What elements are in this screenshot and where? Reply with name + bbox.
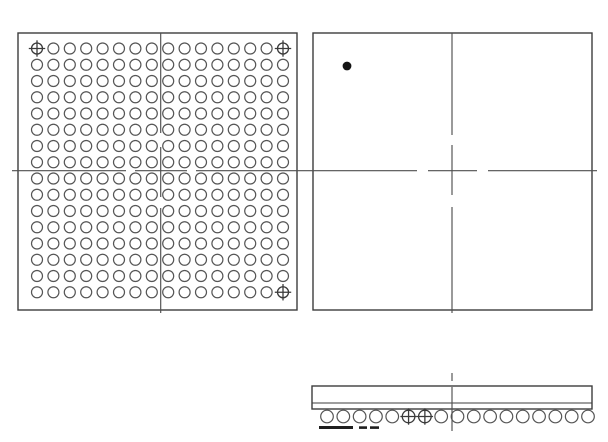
solder-ball — [81, 206, 92, 217]
solder-ball — [278, 173, 289, 184]
solder-ball — [228, 189, 239, 200]
solder-ball — [48, 76, 59, 87]
solder-ball-side — [468, 410, 481, 423]
solder-ball — [97, 254, 108, 265]
solder-ball — [196, 254, 207, 265]
solder-ball — [64, 254, 75, 265]
solder-ball — [228, 124, 239, 135]
solder-ball — [97, 76, 108, 87]
solder-ball — [130, 92, 141, 103]
solder-ball — [97, 173, 108, 184]
solder-ball — [163, 173, 174, 184]
solder-ball — [48, 189, 59, 200]
solder-ball — [228, 92, 239, 103]
solder-ball-side — [484, 410, 497, 423]
solder-ball — [114, 124, 125, 135]
solder-ball — [179, 157, 190, 168]
solder-ball — [81, 59, 92, 70]
solder-ball — [196, 206, 207, 217]
solder-ball — [179, 108, 190, 119]
solder-ball — [130, 238, 141, 249]
solder-ball — [130, 76, 141, 87]
solder-ball — [245, 141, 256, 152]
solder-ball — [114, 206, 125, 217]
solder-ball — [261, 124, 272, 135]
solder-ball — [130, 222, 141, 233]
solder-ball — [146, 206, 157, 217]
solder-ball — [179, 173, 190, 184]
solder-ball — [32, 222, 43, 233]
solder-ball — [163, 141, 174, 152]
solder-ball — [212, 206, 223, 217]
solder-ball — [261, 157, 272, 168]
solder-ball — [245, 43, 256, 54]
solder-ball — [81, 108, 92, 119]
solder-ball-side — [516, 410, 529, 423]
solder-ball — [81, 76, 92, 87]
solder-ball — [245, 76, 256, 87]
solder-ball — [261, 141, 272, 152]
solder-ball — [163, 92, 174, 103]
solder-ball — [212, 189, 223, 200]
solder-ball — [32, 254, 43, 265]
solder-ball — [212, 59, 223, 70]
solder-ball — [228, 287, 239, 298]
solder-ball — [97, 189, 108, 200]
solder-ball — [146, 189, 157, 200]
solder-ball — [245, 173, 256, 184]
solder-ball — [146, 76, 157, 87]
solder-ball — [97, 141, 108, 152]
solder-ball — [130, 206, 141, 217]
solder-ball — [97, 157, 108, 168]
solder-ball-side — [582, 410, 595, 423]
solder-ball — [64, 92, 75, 103]
solder-ball — [179, 271, 190, 282]
solder-ball — [146, 271, 157, 282]
solder-ball — [130, 108, 141, 119]
solder-ball — [212, 222, 223, 233]
solder-ball — [130, 271, 141, 282]
solder-ball — [278, 189, 289, 200]
solder-ball — [64, 173, 75, 184]
solder-ball — [228, 173, 239, 184]
solder-ball — [163, 43, 174, 54]
solder-ball — [212, 173, 223, 184]
solder-ball — [228, 157, 239, 168]
bga-top-view — [306, 33, 597, 313]
solder-ball — [97, 222, 108, 233]
solder-ball — [212, 271, 223, 282]
solder-ball — [245, 238, 256, 249]
solder-ball — [48, 287, 59, 298]
solder-ball — [179, 254, 190, 265]
solder-ball — [278, 141, 289, 152]
solder-ball — [163, 222, 174, 233]
solder-ball — [179, 92, 190, 103]
solder-ball — [64, 59, 75, 70]
bga-package-drawing — [0, 0, 608, 442]
solder-ball — [196, 238, 207, 249]
solder-ball — [32, 206, 43, 217]
solder-ball — [245, 271, 256, 282]
solder-ball — [228, 59, 239, 70]
seating-plane-datum-mark — [370, 426, 379, 429]
solder-ball — [114, 59, 125, 70]
solder-ball-side — [321, 410, 334, 423]
solder-ball — [114, 173, 125, 184]
solder-ball — [261, 254, 272, 265]
solder-ball — [196, 108, 207, 119]
solder-ball — [146, 92, 157, 103]
solder-ball — [261, 43, 272, 54]
solder-ball — [64, 222, 75, 233]
solder-ball — [163, 206, 174, 217]
solder-ball — [196, 173, 207, 184]
solder-ball — [81, 189, 92, 200]
solder-ball — [245, 124, 256, 135]
solder-ball-side — [337, 410, 350, 423]
solder-ball — [81, 141, 92, 152]
solder-ball-side — [549, 410, 562, 423]
solder-ball — [278, 206, 289, 217]
solder-ball — [179, 189, 190, 200]
solder-ball — [245, 157, 256, 168]
solder-ball — [32, 189, 43, 200]
solder-ball — [196, 43, 207, 54]
solder-ball — [48, 238, 59, 249]
solder-ball — [196, 59, 207, 70]
solder-ball — [163, 271, 174, 282]
solder-ball — [261, 189, 272, 200]
solder-ball — [245, 92, 256, 103]
solder-ball — [212, 287, 223, 298]
solder-ball — [179, 222, 190, 233]
solder-ball — [64, 108, 75, 119]
solder-ball — [212, 157, 223, 168]
solder-ball — [81, 222, 92, 233]
solder-ball — [228, 254, 239, 265]
solder-ball — [163, 76, 174, 87]
solder-ball — [196, 287, 207, 298]
solder-ball-side — [533, 410, 546, 423]
solder-ball — [130, 157, 141, 168]
solder-ball — [97, 108, 108, 119]
solder-ball — [81, 124, 92, 135]
solder-ball — [130, 59, 141, 70]
solder-ball — [81, 92, 92, 103]
solder-ball — [114, 238, 125, 249]
solder-ball — [64, 238, 75, 249]
solder-ball — [97, 238, 108, 249]
solder-ball-side — [451, 410, 464, 423]
solder-ball — [278, 254, 289, 265]
solder-ball — [97, 59, 108, 70]
solder-ball — [32, 141, 43, 152]
solder-ball — [228, 206, 239, 217]
solder-ball — [196, 271, 207, 282]
solder-ball — [32, 76, 43, 87]
solder-ball — [278, 92, 289, 103]
solder-ball — [97, 43, 108, 54]
solder-ball — [163, 108, 174, 119]
solder-ball — [245, 108, 256, 119]
solder-ball — [81, 43, 92, 54]
solder-ball — [212, 108, 223, 119]
solder-ball — [261, 271, 272, 282]
solder-ball — [245, 59, 256, 70]
solder-ball — [179, 76, 190, 87]
solder-ball — [179, 206, 190, 217]
solder-ball — [278, 108, 289, 119]
solder-ball — [130, 124, 141, 135]
solder-ball — [212, 254, 223, 265]
solder-ball — [32, 238, 43, 249]
solder-ball — [146, 43, 157, 54]
solder-ball — [114, 254, 125, 265]
solder-ball — [64, 271, 75, 282]
solder-ball — [261, 76, 272, 87]
solder-ball-side — [500, 410, 513, 423]
solder-ball — [64, 287, 75, 298]
solder-ball — [228, 238, 239, 249]
package-outline-bottom — [18, 33, 297, 310]
solder-ball — [114, 43, 125, 54]
solder-ball — [179, 59, 190, 70]
solder-ball — [97, 287, 108, 298]
solder-ball — [212, 76, 223, 87]
solder-ball — [64, 157, 75, 168]
solder-ball — [228, 76, 239, 87]
solder-ball — [163, 287, 174, 298]
solder-ball — [32, 59, 43, 70]
solder-ball — [146, 222, 157, 233]
solder-ball — [245, 254, 256, 265]
solder-ball — [212, 92, 223, 103]
solder-ball — [146, 254, 157, 265]
solder-ball — [81, 271, 92, 282]
solder-ball — [32, 173, 43, 184]
solder-ball — [179, 287, 190, 298]
solder-ball — [48, 157, 59, 168]
solder-ball — [212, 141, 223, 152]
solder-ball — [64, 141, 75, 152]
solder-ball-side — [353, 410, 366, 423]
solder-ball — [228, 271, 239, 282]
solder-ball — [278, 222, 289, 233]
solder-ball — [278, 124, 289, 135]
solder-ball — [196, 76, 207, 87]
solder-ball — [114, 92, 125, 103]
solder-ball — [278, 238, 289, 249]
solder-ball-side — [435, 410, 448, 423]
solder-ball — [196, 157, 207, 168]
solder-ball — [97, 271, 108, 282]
solder-ball — [64, 124, 75, 135]
solder-ball-side — [565, 410, 578, 423]
solder-ball — [114, 157, 125, 168]
solder-ball — [114, 189, 125, 200]
solder-ball — [81, 157, 92, 168]
solder-ball — [228, 222, 239, 233]
solder-ball — [163, 59, 174, 70]
bga-side-view — [312, 373, 594, 431]
solder-ball — [228, 141, 239, 152]
solder-ball — [146, 157, 157, 168]
solder-ball — [245, 287, 256, 298]
solder-ball — [163, 124, 174, 135]
solder-ball — [48, 92, 59, 103]
solder-ball — [212, 124, 223, 135]
solder-ball — [179, 43, 190, 54]
bga-bottom-view — [12, 33, 306, 313]
solder-ball — [212, 43, 223, 54]
solder-ball — [64, 76, 75, 87]
solder-ball — [261, 59, 272, 70]
a1-ball-indicator-dot — [343, 62, 352, 71]
solder-ball — [48, 173, 59, 184]
solder-ball — [146, 238, 157, 249]
solder-ball — [32, 108, 43, 119]
solder-ball — [196, 124, 207, 135]
solder-ball — [228, 43, 239, 54]
solder-ball — [97, 124, 108, 135]
package-drawing-canvas — [0, 0, 608, 442]
solder-ball — [146, 287, 157, 298]
solder-ball — [81, 254, 92, 265]
solder-ball — [146, 173, 157, 184]
solder-ball — [48, 254, 59, 265]
solder-ball — [114, 222, 125, 233]
solder-ball — [32, 92, 43, 103]
solder-ball — [97, 206, 108, 217]
solder-ball — [163, 157, 174, 168]
solder-ball — [64, 189, 75, 200]
solder-ball — [278, 271, 289, 282]
solder-ball — [278, 157, 289, 168]
solder-ball — [163, 254, 174, 265]
solder-ball — [64, 206, 75, 217]
solder-ball — [228, 108, 239, 119]
solder-ball — [81, 173, 92, 184]
solder-ball — [48, 108, 59, 119]
solder-ball — [261, 222, 272, 233]
solder-ball — [196, 92, 207, 103]
solder-ball — [32, 271, 43, 282]
solder-ball — [48, 59, 59, 70]
solder-ball — [212, 238, 223, 249]
solder-ball — [114, 108, 125, 119]
solder-ball — [179, 124, 190, 135]
solder-ball — [130, 189, 141, 200]
solder-ball — [32, 157, 43, 168]
seating-plane-datum-mark — [319, 426, 353, 429]
solder-ball — [81, 287, 92, 298]
solder-ball — [130, 43, 141, 54]
solder-ball — [114, 287, 125, 298]
solder-ball — [114, 76, 125, 87]
seating-plane-datum-mark — [359, 426, 367, 429]
solder-ball — [130, 287, 141, 298]
solder-ball-side — [370, 410, 383, 423]
solder-ball — [130, 254, 141, 265]
solder-ball — [64, 43, 75, 54]
solder-ball — [48, 222, 59, 233]
solder-ball — [245, 206, 256, 217]
solder-ball — [261, 173, 272, 184]
solder-ball — [261, 238, 272, 249]
solder-ball — [261, 206, 272, 217]
solder-ball — [196, 189, 207, 200]
solder-ball — [179, 238, 190, 249]
solder-ball — [48, 124, 59, 135]
solder-ball — [130, 173, 141, 184]
solder-ball-side — [386, 410, 399, 423]
solder-ball — [278, 76, 289, 87]
solder-ball — [146, 108, 157, 119]
solder-ball — [261, 92, 272, 103]
solder-ball — [163, 238, 174, 249]
solder-ball — [48, 43, 59, 54]
solder-ball — [97, 92, 108, 103]
solder-ball — [245, 222, 256, 233]
solder-ball — [179, 141, 190, 152]
solder-ball — [146, 59, 157, 70]
solder-ball — [146, 141, 157, 152]
solder-ball — [48, 206, 59, 217]
solder-ball — [163, 189, 174, 200]
solder-ball — [196, 222, 207, 233]
solder-ball — [196, 141, 207, 152]
solder-ball — [114, 141, 125, 152]
solder-ball — [32, 124, 43, 135]
solder-ball — [245, 189, 256, 200]
solder-ball — [130, 141, 141, 152]
solder-ball — [146, 124, 157, 135]
solder-ball — [261, 287, 272, 298]
solder-ball — [114, 271, 125, 282]
solder-ball — [32, 287, 43, 298]
solder-ball — [278, 59, 289, 70]
solder-ball — [81, 238, 92, 249]
solder-ball — [261, 108, 272, 119]
solder-ball — [48, 271, 59, 282]
solder-ball — [48, 141, 59, 152]
